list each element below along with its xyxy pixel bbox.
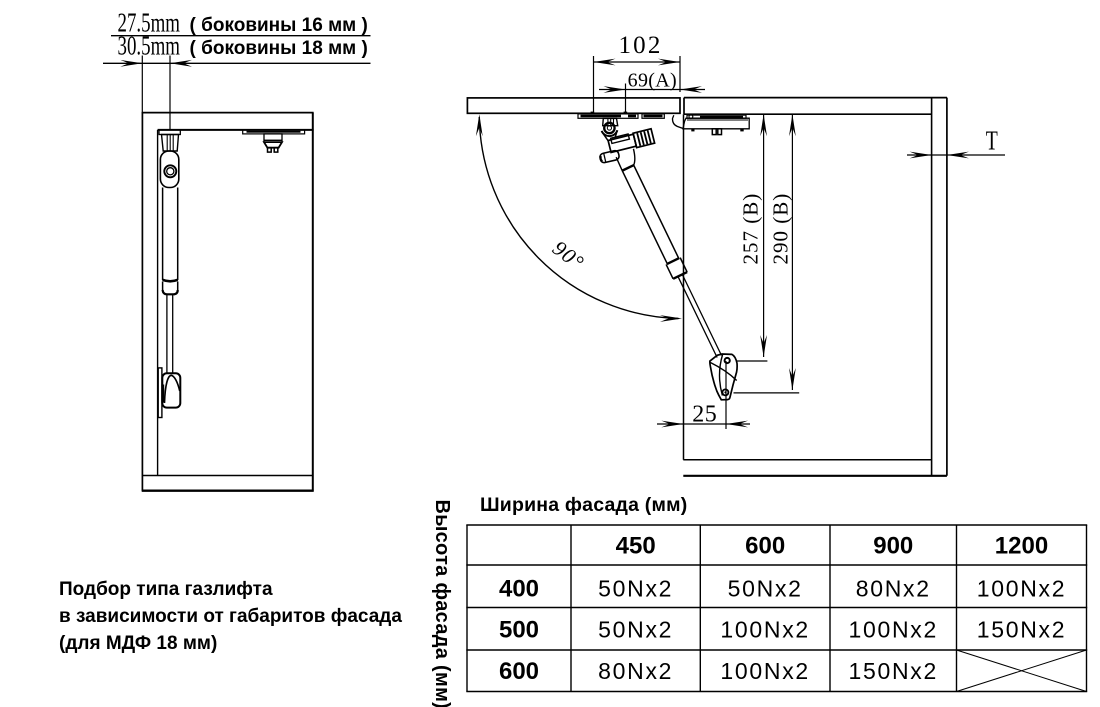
svg-text:Высота фасада (мм): Высота фасада (мм): [431, 500, 453, 707]
svg-text:( боковины 18 мм ): ( боковины 18 мм ): [190, 38, 368, 59]
svg-text:500: 500: [499, 617, 539, 644]
svg-text:T: T: [986, 127, 999, 157]
svg-text:100Nx2: 100Nx2: [720, 617, 809, 643]
svg-text:в зависимости от габаритов фас: в зависимости от габаритов фасада: [59, 606, 402, 627]
svg-text:50Nx2: 50Nx2: [728, 576, 803, 602]
svg-text:290 (B): 290 (B): [769, 193, 793, 265]
svg-text:600: 600: [745, 533, 785, 560]
svg-text:900: 900: [873, 533, 913, 560]
svg-text:80Nx2: 80Nx2: [598, 658, 673, 684]
svg-text:100Nx2: 100Nx2: [720, 658, 809, 684]
svg-text:1200: 1200: [995, 533, 1048, 560]
svg-text:( боковины 16 мм ): ( боковины 16 мм ): [190, 15, 368, 36]
svg-text:257 (B): 257 (B): [739, 193, 763, 265]
svg-text:90°: 90°: [548, 236, 589, 275]
svg-text:100Nx2: 100Nx2: [977, 576, 1066, 602]
svg-text:80Nx2: 80Nx2: [856, 576, 931, 602]
svg-text:Ширина фасада (мм): Ширина фасада (мм): [480, 494, 687, 516]
svg-text:150Nx2: 150Nx2: [977, 617, 1066, 643]
svg-text:50Nx2: 50Nx2: [598, 576, 673, 602]
svg-text:100Nx2: 100Nx2: [849, 617, 938, 643]
svg-text:Подбор типа газлифта: Подбор типа газлифта: [59, 579, 273, 600]
svg-text:400: 400: [499, 576, 539, 603]
svg-text:450: 450: [616, 533, 656, 560]
svg-text:69(A): 69(A): [628, 70, 677, 92]
svg-text:50Nx2: 50Nx2: [598, 617, 673, 643]
svg-text:150Nx2: 150Nx2: [849, 658, 938, 684]
svg-text:102: 102: [618, 32, 662, 59]
svg-text:600: 600: [499, 658, 539, 685]
svg-text:(для МДФ 18 мм): (для МДФ 18 мм): [59, 633, 217, 654]
